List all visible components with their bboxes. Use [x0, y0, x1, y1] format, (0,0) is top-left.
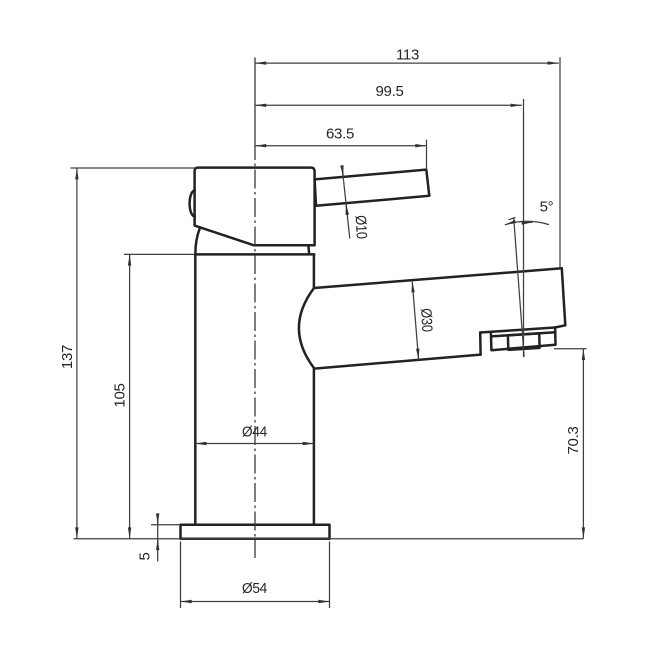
svg-text:70.3: 70.3	[565, 427, 582, 455]
svg-text:63.5: 63.5	[326, 126, 354, 143]
svg-text:99.5: 99.5	[376, 83, 404, 100]
svg-text:113: 113	[396, 47, 419, 64]
svg-text:5: 5	[136, 552, 153, 560]
svg-text:Ø30: Ø30	[417, 308, 435, 332]
svg-text:137: 137	[59, 345, 76, 369]
svg-text:Ø10: Ø10	[352, 215, 370, 239]
svg-text:Ø44: Ø44	[242, 424, 267, 441]
svg-text:105: 105	[111, 383, 128, 407]
svg-text:5°: 5°	[540, 199, 554, 216]
svg-text:Ø54: Ø54	[242, 580, 267, 597]
